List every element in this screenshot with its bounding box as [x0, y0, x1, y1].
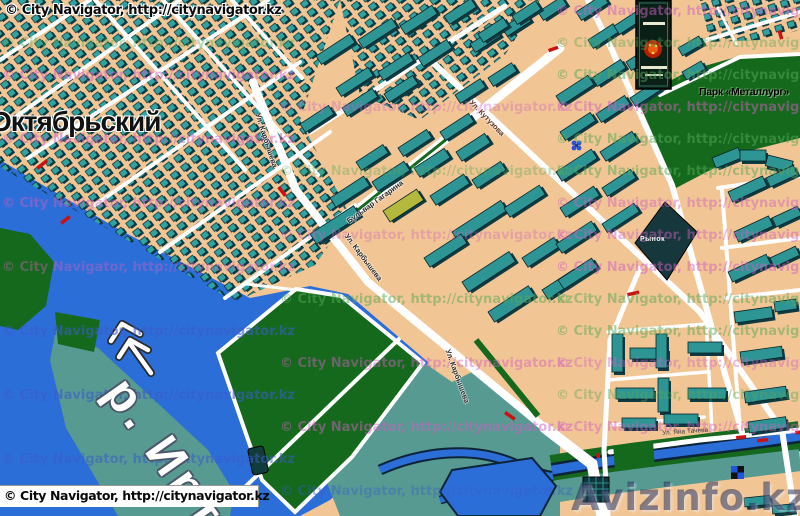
building — [656, 334, 669, 371]
building — [688, 342, 724, 356]
checker-poi-icon — [731, 466, 744, 479]
building — [740, 150, 768, 164]
route-mark — [597, 453, 601, 458]
city-map-canvas[interactable]: © City Navigator, http://citynavigator.k… — [0, 0, 800, 516]
building — [658, 378, 671, 415]
route-mark — [795, 430, 800, 434]
building — [772, 503, 797, 516]
building — [664, 414, 700, 427]
building — [688, 388, 728, 402]
grid-building — [583, 477, 609, 502]
building — [612, 334, 625, 375]
building — [616, 388, 656, 402]
building — [622, 418, 658, 431]
green-patch-bridge — [613, 443, 655, 470]
map-graphics — [0, 0, 800, 516]
poi-banner — [636, 0, 671, 89]
